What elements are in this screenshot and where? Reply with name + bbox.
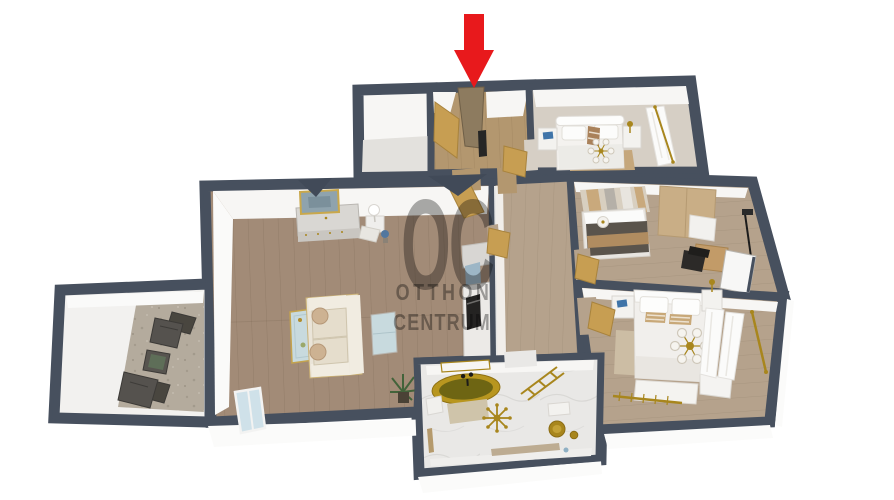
- bedroom1-nightstand-left: [538, 128, 557, 150]
- opening-corridor-bathroom: [504, 350, 537, 368]
- watermark-line1: OTTHON: [396, 280, 493, 306]
- hall-coat-rack: [478, 130, 487, 157]
- bedroom3-nightstand-left: [612, 296, 634, 318]
- room-balcony: [56, 286, 208, 420]
- bedroom1-door-leaf: [503, 146, 527, 177]
- living-blue-plant: [381, 230, 389, 238]
- bedroom2-bed: [582, 208, 650, 260]
- living-window: [235, 388, 265, 433]
- living-sofa: [306, 294, 364, 378]
- room-bedroom-3: [578, 279, 781, 428]
- bathroom-towel: [426, 396, 443, 415]
- watermark: OC OTTHON CENTRUM: [393, 174, 494, 336]
- living-table-lamp: [369, 205, 380, 216]
- bedroom2-door-leaf: [575, 254, 599, 284]
- room-entry-closet: [360, 90, 431, 174]
- living-wall-picture: [300, 190, 339, 214]
- bedroom2-wardrobe: [658, 186, 716, 241]
- room-corridor: [492, 178, 581, 360]
- hall-wall-face-right: [486, 90, 528, 118]
- bedroom2-window: [720, 250, 756, 294]
- bathroom-waste-bin: [570, 431, 578, 439]
- bedroom1-bed: [556, 115, 624, 170]
- room-bedroom-1: [529, 83, 701, 171]
- entrance-arrow: [454, 14, 494, 88]
- room-bathroom: [417, 356, 601, 472]
- bedroom2-ceiling-lamp: [598, 217, 609, 228]
- watermark-line2: CENTRUM: [393, 310, 491, 336]
- balcony-side-table: [143, 350, 170, 374]
- bathroom-glass: [564, 448, 569, 453]
- floorplan-image: OC OTTHON CENTRUM: [0, 0, 894, 500]
- room-bedroom-2: [570, 178, 782, 296]
- closet-floor: [362, 136, 430, 172]
